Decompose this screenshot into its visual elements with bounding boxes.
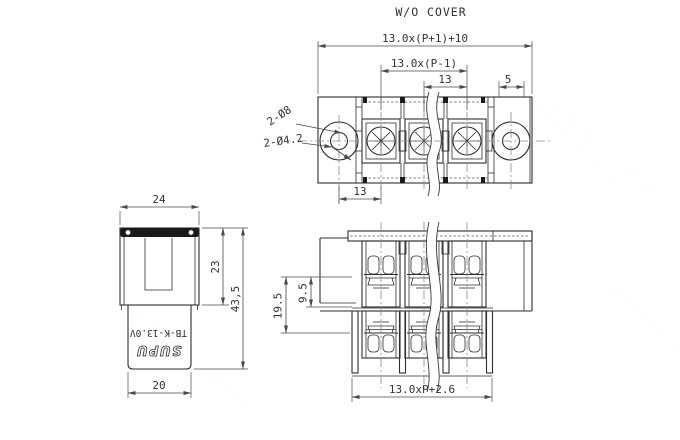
dim-bottom-width: 20 (152, 379, 165, 392)
clamp-lower-1 (362, 311, 400, 358)
technical-drawing-page: SUPU TB-K-13.0V (0, 0, 680, 440)
cap-screw-left (125, 230, 130, 235)
top-view (298, 92, 551, 204)
dim-side-width: 24 (152, 193, 166, 206)
wire-slot (145, 238, 172, 290)
terminal-block-drawing: SUPU TB-K-13.0V (0, 0, 680, 440)
dim-half-height: 9.5 (297, 283, 310, 303)
cover-cap (121, 228, 199, 237)
dim-total-height: 43,5 (229, 286, 242, 313)
centerlines-front-view (381, 222, 467, 388)
callout-boss-diameter: 2-Ø8 (265, 103, 294, 128)
drawing-title: W/O COVER (395, 5, 466, 19)
callout-hole-diameter: 2-Ø4.2 (263, 132, 304, 150)
dim-hole-to-pole: 13 (353, 185, 366, 198)
cap-screw-right (188, 230, 193, 235)
dim-pitch: 13 (438, 73, 451, 86)
dim-inner-width: 13.0x(P-1) (391, 57, 457, 70)
watermark-text: · ˙ · ˙ · ˙ · ˙ · ˙ · ˙ · (555, 108, 663, 206)
dim-end-offset: 5 (505, 73, 512, 86)
watermark-text: · ˙ · ˙ · ˙ · ˙ · ˙ · ˙ · (139, 314, 247, 412)
watermark-text: · ˙ · ˙ · ˙ · ˙ · ˙ · ˙ · (511, 86, 619, 184)
clamp-lower-3 (448, 311, 486, 358)
break-line-top-view (427, 92, 442, 196)
dim-center-width: 13.0xP+2.6 (389, 383, 455, 396)
dim-total-width: 13.0x(P+1)+10 (382, 32, 468, 45)
watermark-text: · ˙ · ˙ · ˙ · ˙ · ˙ · ˙ · (609, 286, 680, 384)
side-view: SUPU TB-K-13.0V (120, 228, 199, 369)
dim-row-height: 19.5 (272, 293, 285, 320)
dim-upper-height: 23 (209, 260, 222, 273)
